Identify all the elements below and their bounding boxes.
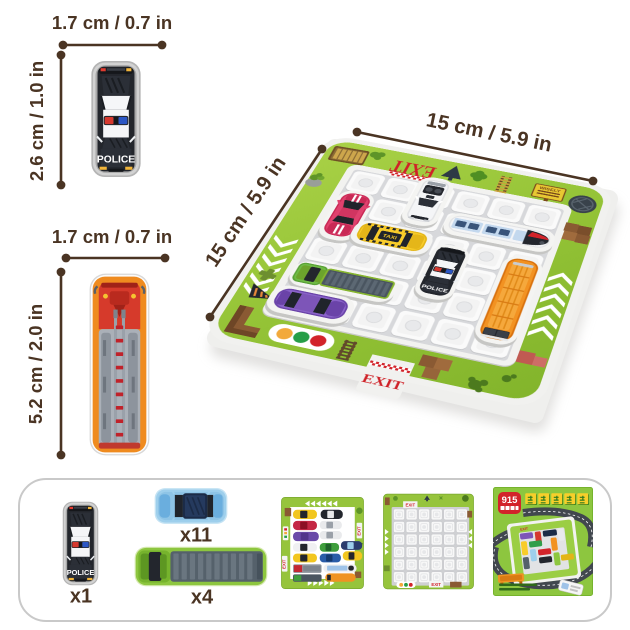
svg-text:EXIT: EXIT (431, 582, 441, 587)
svg-text:POLICE: POLICE (67, 568, 95, 577)
svg-text:EXIT: EXIT (282, 559, 287, 569)
svg-text:EXIT: EXIT (406, 503, 416, 508)
svg-text:EXIT: EXIT (356, 526, 361, 536)
svg-text:915: 915 (502, 495, 519, 506)
svg-text:POLICE: POLICE (97, 155, 135, 166)
